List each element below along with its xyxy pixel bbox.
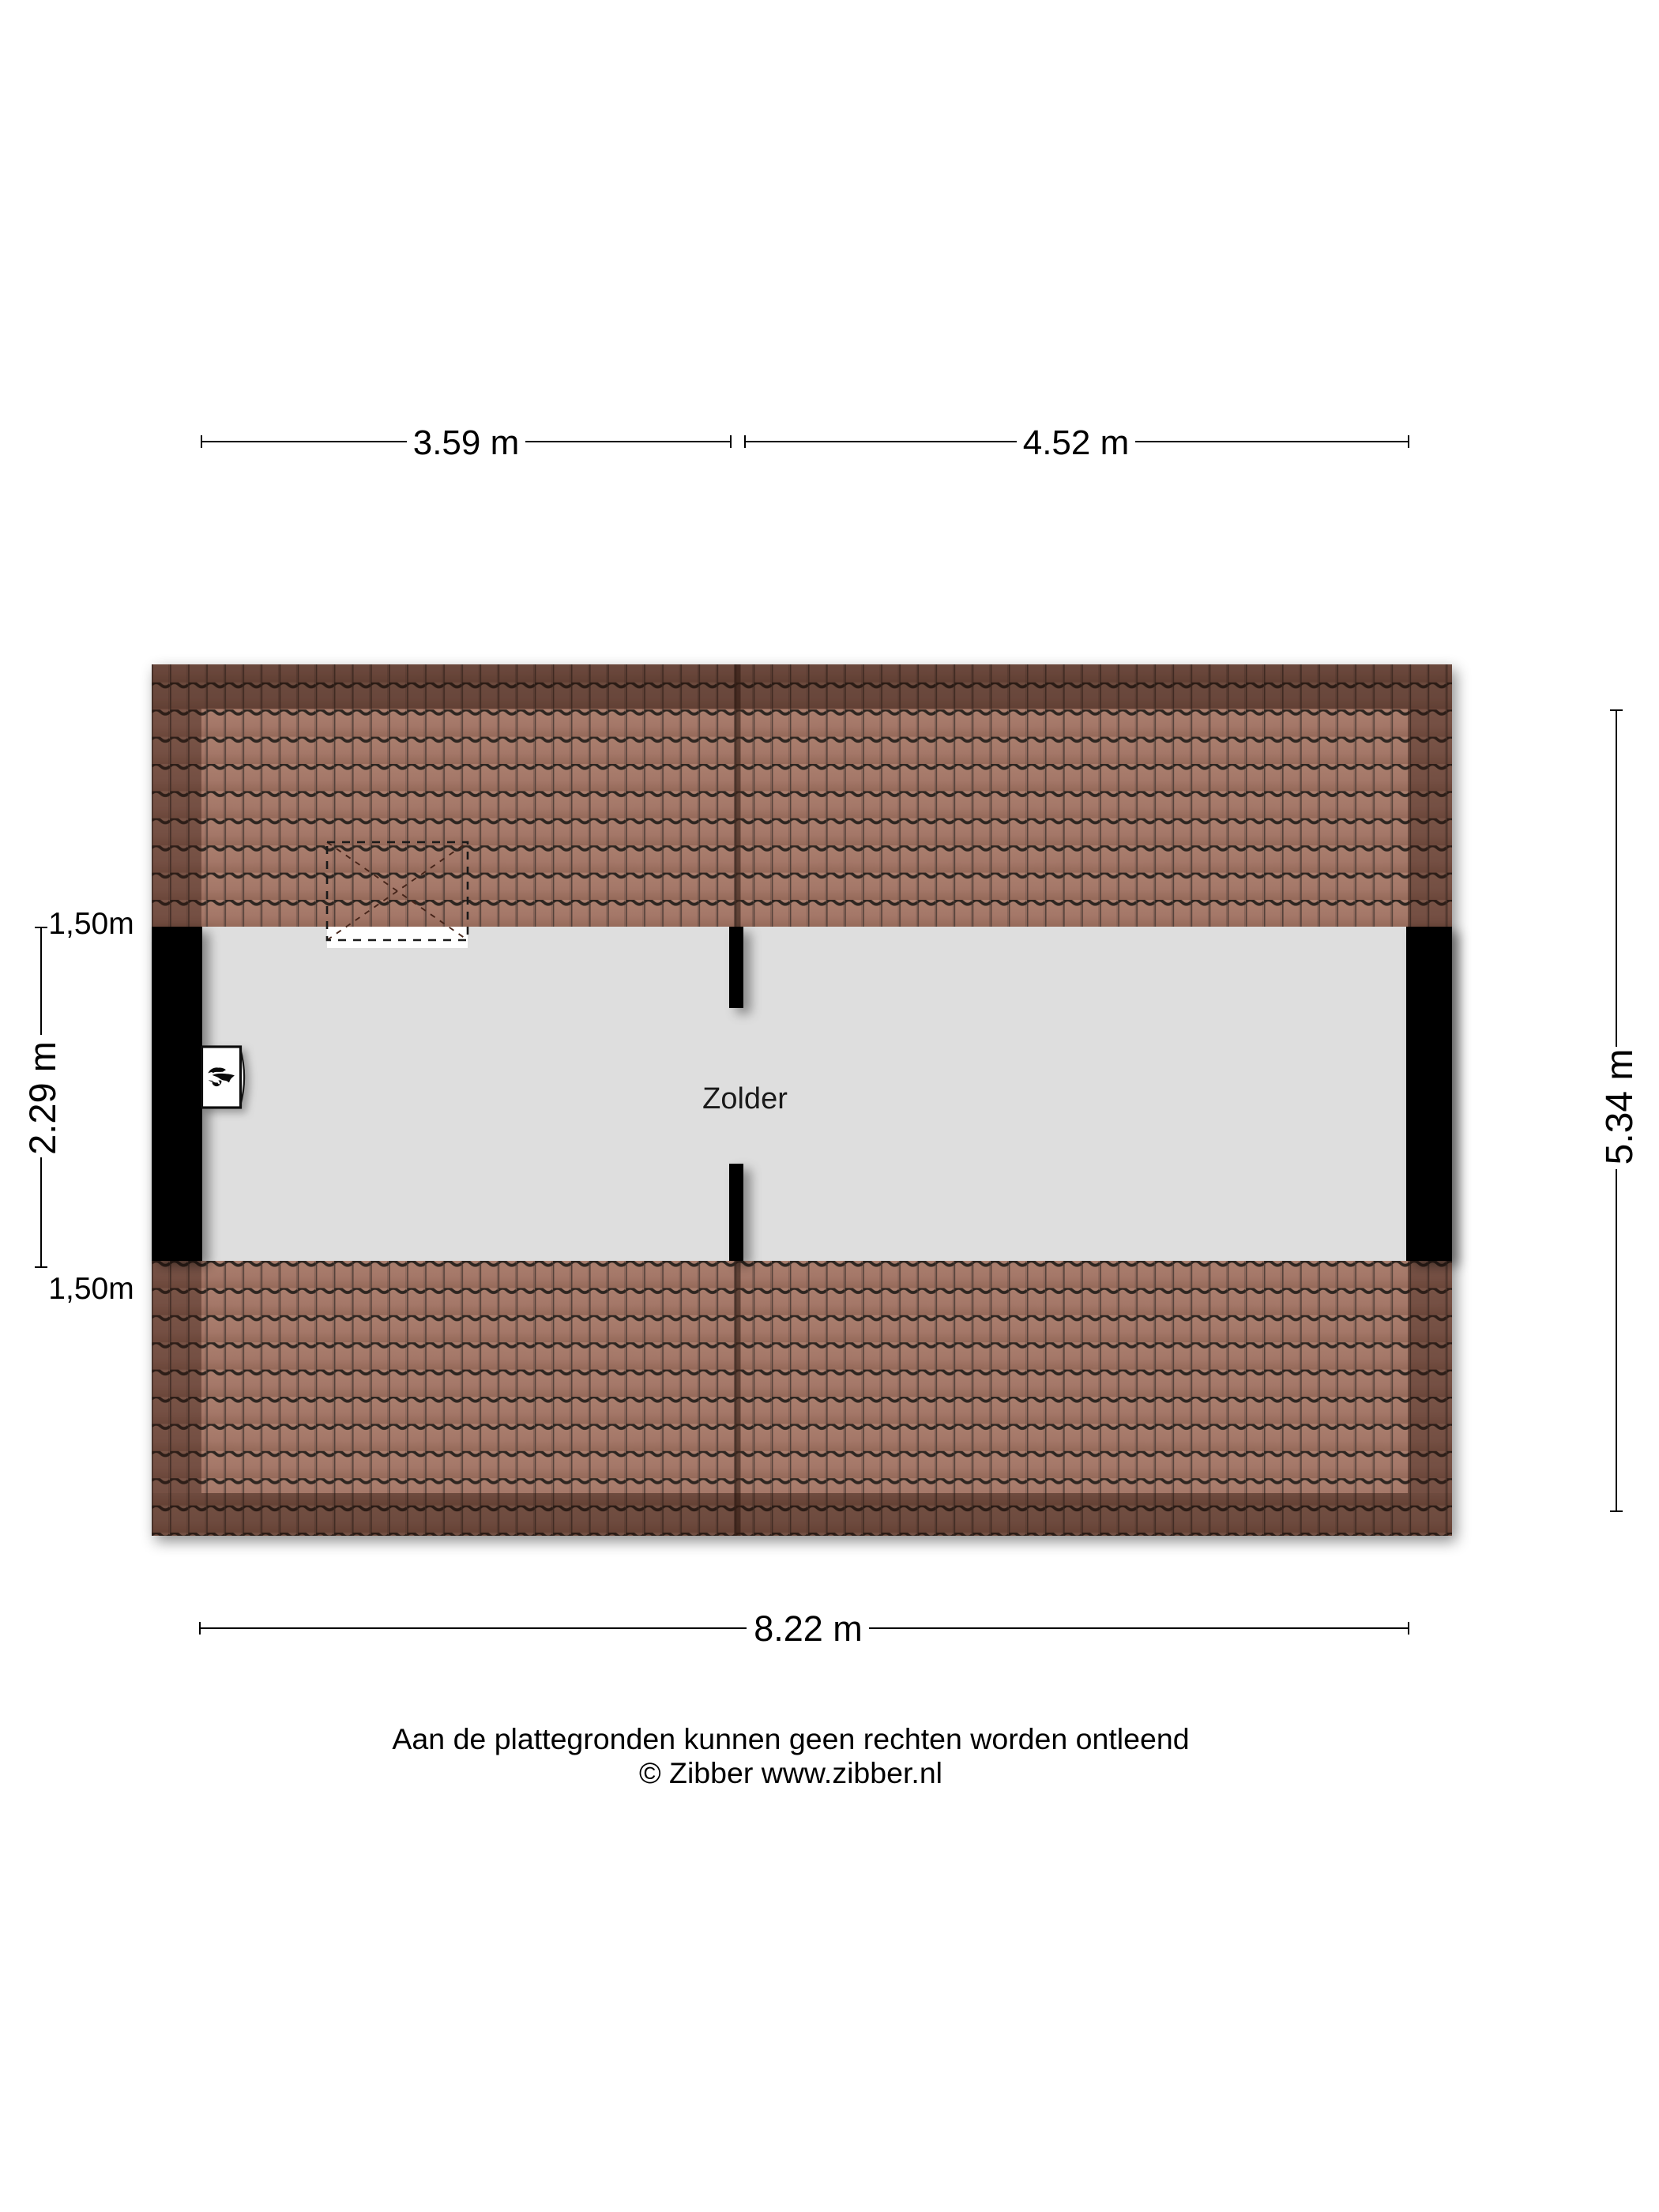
svg-text:© Zibber www.zibber.nl: © Zibber www.zibber.nl [639,1756,942,1789]
svg-text:2.29 m: 2.29 m [21,1041,63,1155]
svg-text:Zolder: Zolder [702,1082,788,1115]
svg-text:Aan de plattegronden kunnen ge: Aan de plattegronden kunnen geen rechten… [392,1722,1189,1755]
svg-text:3.59 m: 3.59 m [413,423,520,462]
svg-text:5.34 m: 5.34 m [1599,1049,1641,1165]
svg-text:1,50m: 1,50m [48,1272,134,1306]
svg-text:8.22 m: 8.22 m [754,1608,863,1649]
svg-text:4.52 m: 4.52 m [1023,423,1130,462]
svg-text:1,50m: 1,50m [48,907,134,941]
